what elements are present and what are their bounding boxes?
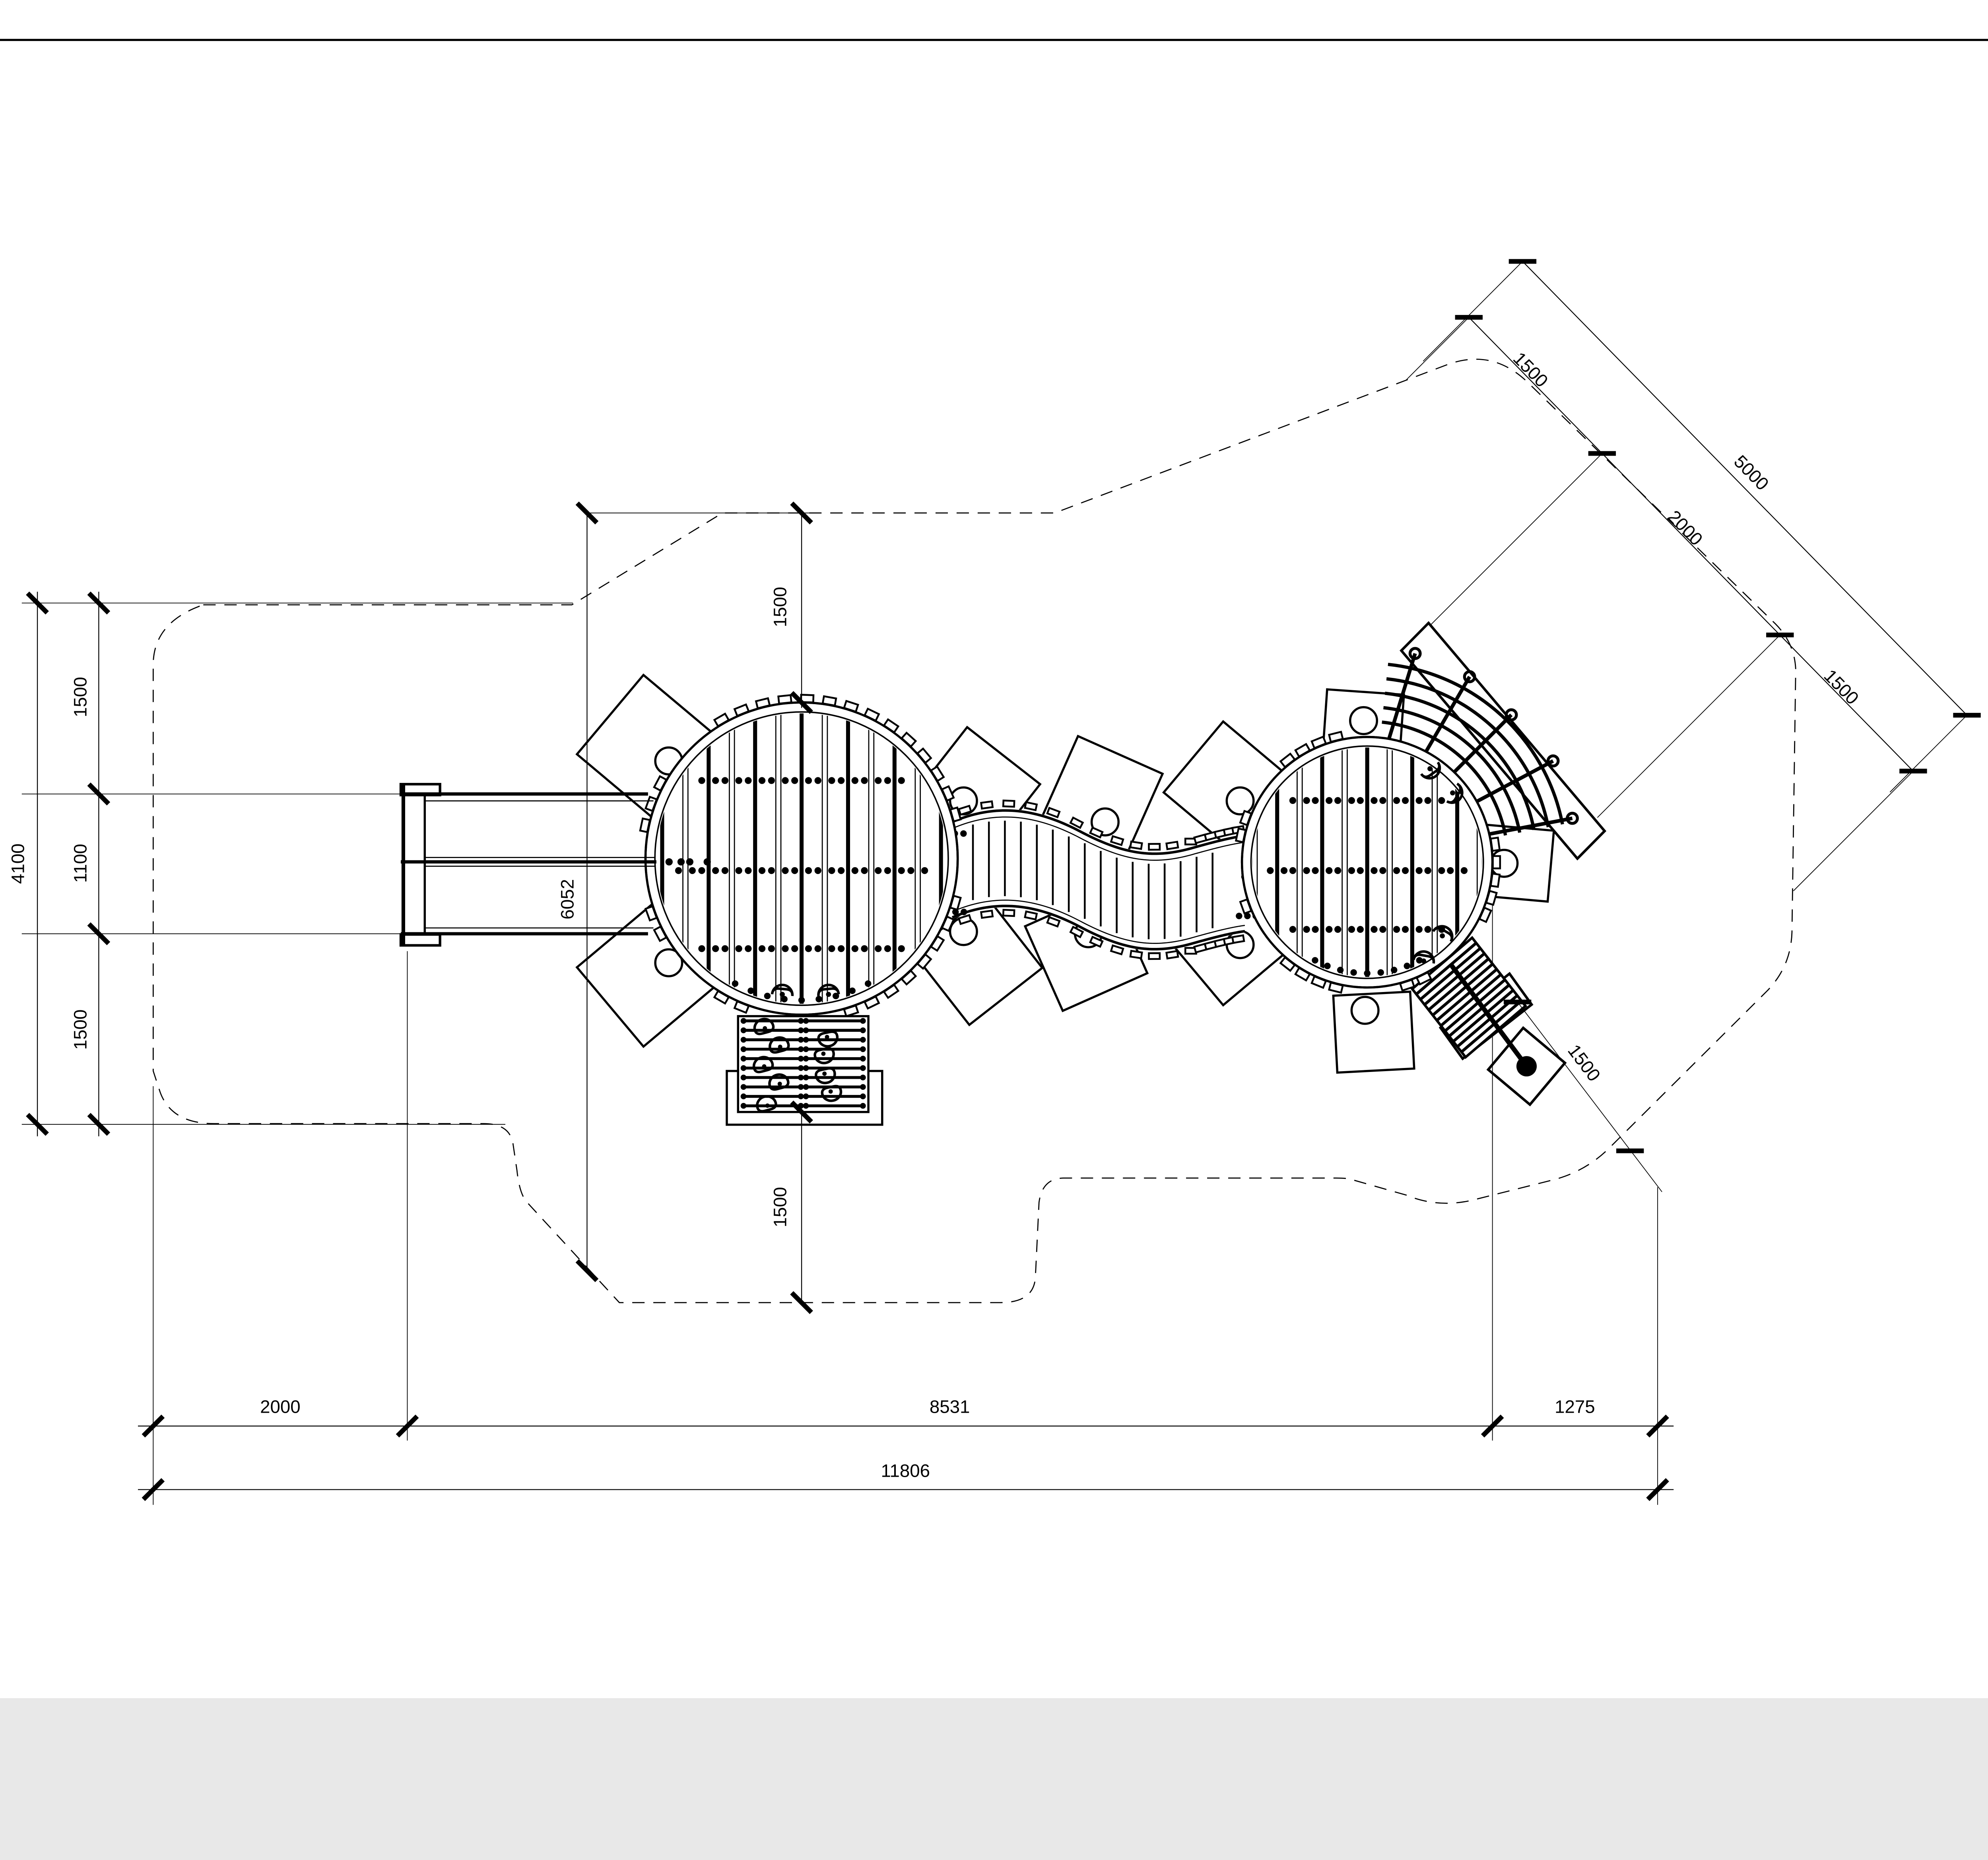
dim-label: 6052 (557, 879, 578, 920)
dim-label: 2000 (260, 1397, 301, 1417)
dim-label: 1500 (70, 1010, 90, 1050)
access-stairs (727, 1016, 882, 1125)
drawing-sheet: 4100150011001500150060521500200085311275… (0, 0, 1988, 1698)
dim-label: 11806 (881, 1460, 930, 1481)
dim-label: 1500 (1509, 348, 1552, 391)
dim-label: 8531 (930, 1397, 970, 1417)
drawing-root: 4100150011001500150060521500200085311275… (0, 40, 1988, 1505)
dim-label: 4100 (8, 843, 28, 884)
dim-label: 1275 (1555, 1397, 1595, 1417)
plan-drawing: 4100150011001500150060521500200085311275… (0, 0, 1988, 1698)
dim-label: 1500 (1564, 1041, 1604, 1085)
dim-label: 5000 (1730, 451, 1773, 494)
dim-label: 1500 (70, 677, 90, 717)
dim-label: 1500 (770, 587, 790, 627)
dim-label: 1500 (1820, 666, 1862, 709)
dim-label: 1100 (70, 844, 90, 883)
dim-label: 2000 (1664, 507, 1706, 549)
dim-label: 1500 (770, 1187, 790, 1227)
